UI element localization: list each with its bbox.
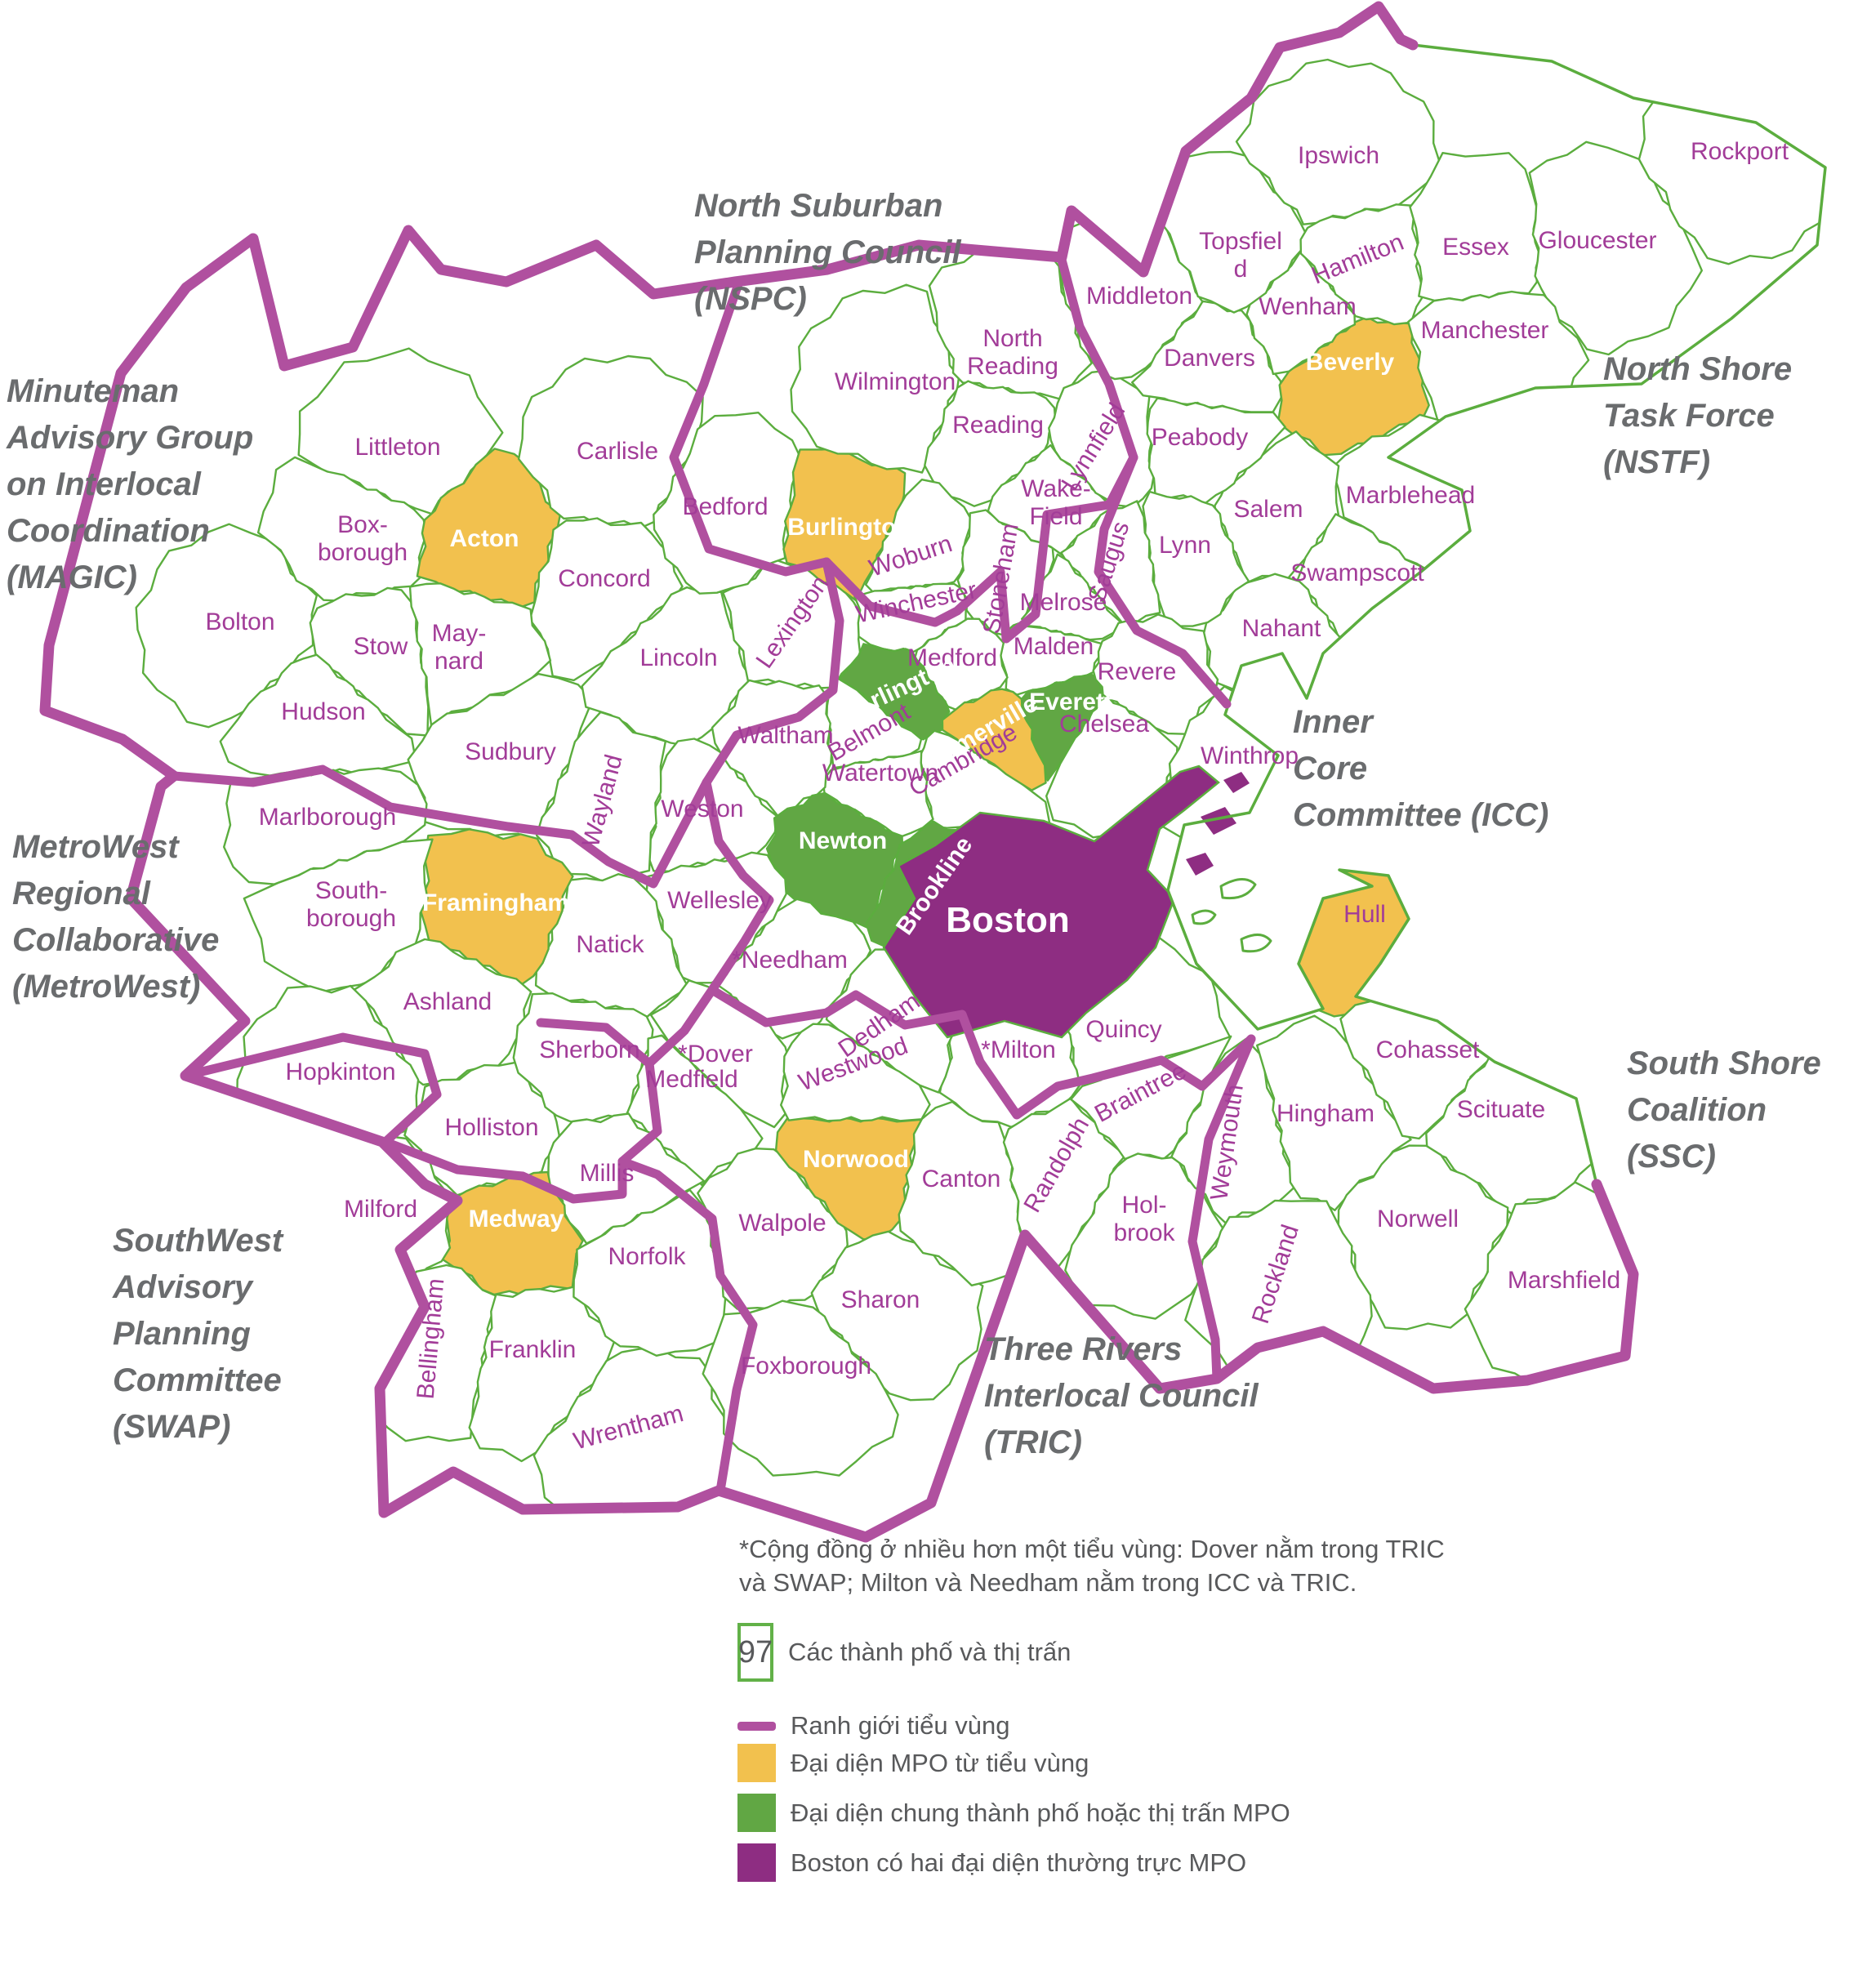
- town-label-hudson: Hudson: [281, 698, 365, 725]
- town-label-framingham: Framingham: [422, 889, 569, 916]
- towns-count-value: 97: [738, 1635, 773, 1670]
- legend-row-atlarge: Đại diện chung thành phố hoặc thị trấn M…: [737, 1794, 1290, 1832]
- legend-label-atlarge: Đại diện chung thành phố hoặc thị trấn M…: [791, 1799, 1290, 1828]
- boundary-line-swatch: [737, 1722, 776, 1731]
- town-label-canton: Canton: [922, 1166, 1001, 1192]
- town-label-gloucester: Gloucester: [1538, 227, 1656, 254]
- town-label-carlisle: Carlisle: [577, 438, 658, 465]
- footnote-line-1: *Cộng đồng ở nhiều hơn một tiểu vùng: Do…: [739, 1532, 1597, 1566]
- town-label-ashland: Ashland: [403, 988, 492, 1015]
- town-label-middleton: Middleton: [1086, 283, 1192, 310]
- town-label-holliston: Holliston: [444, 1114, 538, 1141]
- town-label-swampscott: Swampscott: [1290, 559, 1424, 586]
- town-label-malden: Malden: [1014, 633, 1094, 660]
- boston-harbor-islet: [1186, 853, 1214, 876]
- town-label-needham: *Needham: [732, 947, 848, 974]
- town-label-marlborough: Marlborough: [259, 804, 396, 831]
- town-label-milford: Milford: [344, 1196, 417, 1223]
- town-label-hull: Hull: [1343, 901, 1386, 928]
- town-label-wenham: Wenham: [1259, 293, 1357, 320]
- town-label-lynn: Lynn: [1159, 532, 1211, 559]
- town-label-waltham: Waltham: [737, 722, 833, 749]
- town-label-norfolk: Norfolk: [608, 1243, 686, 1270]
- town-label-beverly: Beverly: [1306, 349, 1395, 376]
- town-label-marshfield: Marshfield: [1508, 1267, 1620, 1294]
- harbor-island-icon: [1221, 879, 1255, 898]
- town-label-weston: Weston: [661, 796, 743, 822]
- member-swatch: [737, 1744, 776, 1782]
- town-label-millis: Millis: [580, 1160, 635, 1187]
- town-label-franklin: Franklin: [489, 1336, 577, 1363]
- town-label-holbrook: Hol-brook: [1113, 1192, 1175, 1246]
- town-label-norwood: Norwood: [803, 1146, 909, 1173]
- subregion-title-icc: InnerCoreCommittee (ICC): [1293, 704, 1548, 833]
- town-label-sharon: Sharon: [841, 1286, 920, 1313]
- town-label-norwell: Norwell: [1377, 1206, 1459, 1232]
- town-label-maynard: May-nard: [432, 620, 487, 675]
- town-label-chelsea: Chelsea: [1059, 711, 1149, 738]
- town-label-concord: Concord: [558, 565, 650, 592]
- town-label-foxborough: Foxborough: [741, 1353, 871, 1380]
- footnote-line-2: và SWAP; Milton và Needham nằm trong ICC…: [739, 1566, 1597, 1599]
- town-label-littleton: Littleton: [354, 434, 440, 461]
- town-label-cohasset: Cohasset: [1376, 1036, 1480, 1063]
- town-label-sudbury: Sudbury: [465, 738, 556, 765]
- town-label-wellesley: Wellesley: [667, 887, 772, 914]
- legend-row-boundary: Ranh giới tiểu vùng: [737, 1711, 1010, 1741]
- harbor-island-icon: [1192, 911, 1215, 924]
- town-label-bolton: Bolton: [205, 608, 274, 635]
- legend-label-member: Đại diện MPO từ tiểu vùng: [791, 1749, 1089, 1778]
- subregion-title-metrowest: MetroWestRegionalCollaborative(MetroWest…: [12, 829, 219, 1005]
- town-label-rockport: Rockport: [1691, 138, 1789, 165]
- town-label-hingham: Hingham: [1276, 1100, 1374, 1127]
- town-label-natick: Natick: [576, 931, 644, 958]
- subregion-title-swap: SouthWestAdvisoryPlanningCommittee(SWAP): [112, 1223, 284, 1445]
- town-label-boston: Boston: [946, 900, 1070, 940]
- town-label-scituate: Scituate: [1457, 1096, 1545, 1123]
- town-label-wilmington: Wilmington: [835, 368, 956, 395]
- boston-swatch: [737, 1843, 776, 1882]
- town-label-bedford: Bedford: [682, 493, 768, 520]
- atlarge-swatch: [737, 1794, 776, 1832]
- town-label-walpole: Walpole: [738, 1210, 826, 1237]
- town-areas-layer: [136, 54, 1844, 1537]
- subregion-title-nstf: North ShoreTask Force(NSTF): [1603, 351, 1792, 480]
- legend-row-towns-count: 97 Các thành phố và thị trấn: [737, 1623, 1071, 1682]
- town-label-winthrop: Winthrop: [1201, 742, 1299, 769]
- town-label-reading: Reading: [952, 412, 1044, 439]
- legend-label-boundary: Ranh giới tiểu vùng: [791, 1711, 1010, 1741]
- town-label-stow: Stow: [354, 633, 408, 660]
- legend: 97 Các thành phố và thị trấn Ranh giới t…: [737, 1623, 1407, 1925]
- harbor-island-icon: [1241, 934, 1271, 951]
- town-label-hopkinton: Hopkinton: [285, 1059, 395, 1085]
- footnote: *Cộng đồng ở nhiều hơn một tiểu vùng: Do…: [739, 1532, 1597, 1599]
- mpo-subregions-map-page: North SuburbanPlanning Council(NSPC)Minu…: [0, 0, 1849, 1988]
- town-label-acton: Acton: [450, 525, 519, 552]
- town-label-nahant: Nahant: [1242, 615, 1321, 642]
- town-label-burlington: Burlington: [787, 514, 911, 541]
- town-label-medway: Medway: [469, 1206, 564, 1232]
- town-label-melrose: Melrose: [1020, 589, 1107, 616]
- town-label-medfield: Medfield: [645, 1066, 737, 1093]
- town-label-revere: Revere: [1098, 658, 1177, 685]
- legend-row-member: Đại diện MPO từ tiểu vùng: [737, 1744, 1089, 1782]
- town-label-manchester: Manchester: [1421, 317, 1549, 344]
- town-label-essex: Essex: [1442, 234, 1509, 261]
- town-label-milton: *Milton: [981, 1036, 1056, 1063]
- town-label-marblehead: Marblehead: [1346, 482, 1475, 509]
- town-label-sherborn: Sherborn: [539, 1036, 639, 1063]
- legend-label-towns: Các thành phố và thị trấn: [788, 1638, 1071, 1667]
- town-label-newton: Newton: [799, 827, 887, 854]
- town-label-salem: Salem: [1233, 496, 1303, 523]
- town-label-watertown: Watertown: [822, 760, 938, 787]
- town-label-dover: *Dover: [678, 1041, 753, 1068]
- town-label-danvers: Danvers: [1164, 345, 1255, 372]
- town-label-ipswich: Ipswich: [1298, 142, 1379, 169]
- legend-label-boston: Boston có hai đại diện thường trực MPO: [791, 1848, 1246, 1878]
- town-label-southborough: South-borough: [306, 877, 396, 932]
- legend-row-boston: Boston có hai đại diện thường trực MPO: [737, 1843, 1246, 1882]
- town-label-peabody: Peabody: [1152, 424, 1248, 451]
- towns-count-box: 97: [737, 1623, 773, 1682]
- town-label-quincy: Quincy: [1085, 1016, 1161, 1043]
- subregion-title-ssc: South ShoreCoalition(SSC): [1627, 1045, 1821, 1175]
- town-label-lincoln: Lincoln: [639, 644, 717, 671]
